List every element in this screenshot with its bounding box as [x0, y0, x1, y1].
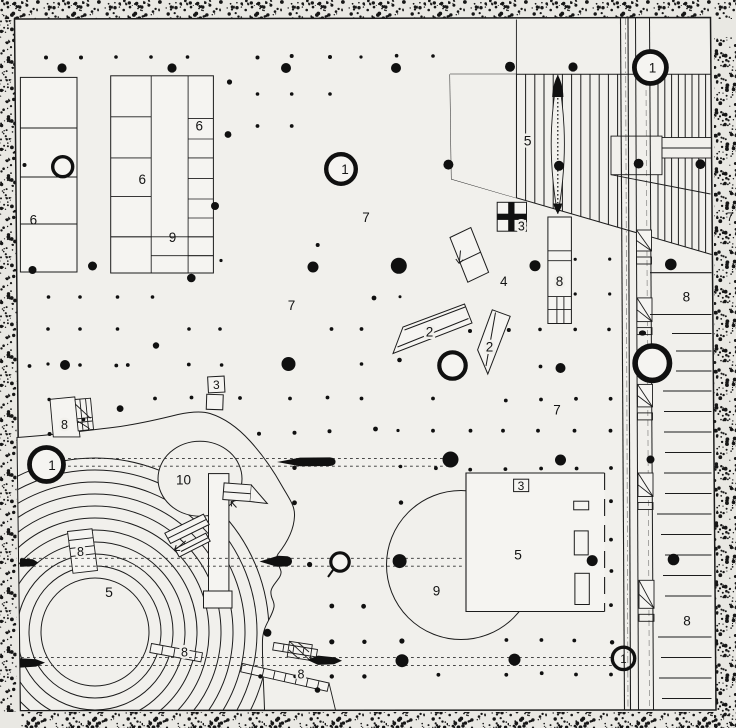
svg-text:8: 8: [77, 545, 84, 559]
svg-text:1: 1: [341, 162, 349, 177]
svg-text:7: 7: [362, 210, 370, 225]
svg-text:8: 8: [683, 290, 691, 305]
svg-text:7: 7: [288, 298, 296, 313]
svg-text:3: 3: [518, 479, 525, 493]
svg-text:6: 6: [30, 213, 38, 228]
svg-text:5: 5: [514, 547, 522, 563]
svg-text:7: 7: [553, 403, 561, 418]
svg-text:3: 3: [518, 220, 525, 234]
svg-text:8: 8: [556, 274, 564, 289]
svg-text:2: 2: [486, 340, 494, 355]
svg-text:9: 9: [433, 584, 441, 599]
svg-text:1: 1: [649, 61, 657, 76]
svg-text:8: 8: [298, 668, 305, 682]
svg-text:1: 1: [48, 458, 56, 473]
svg-text:6: 6: [139, 172, 147, 187]
svg-text:6: 6: [195, 119, 203, 134]
svg-text:5: 5: [524, 133, 532, 149]
svg-text:8: 8: [181, 646, 188, 660]
svg-text:3: 3: [213, 378, 220, 392]
svg-text:7: 7: [727, 210, 734, 224]
svg-text:5: 5: [105, 584, 113, 600]
svg-text:4: 4: [500, 274, 508, 289]
svg-text:10: 10: [176, 473, 191, 488]
svg-text:2: 2: [426, 325, 434, 340]
svg-text:8: 8: [61, 418, 68, 432]
svg-text:9: 9: [169, 230, 177, 245]
svg-text:8: 8: [683, 614, 691, 629]
svg-text:1: 1: [620, 654, 626, 666]
